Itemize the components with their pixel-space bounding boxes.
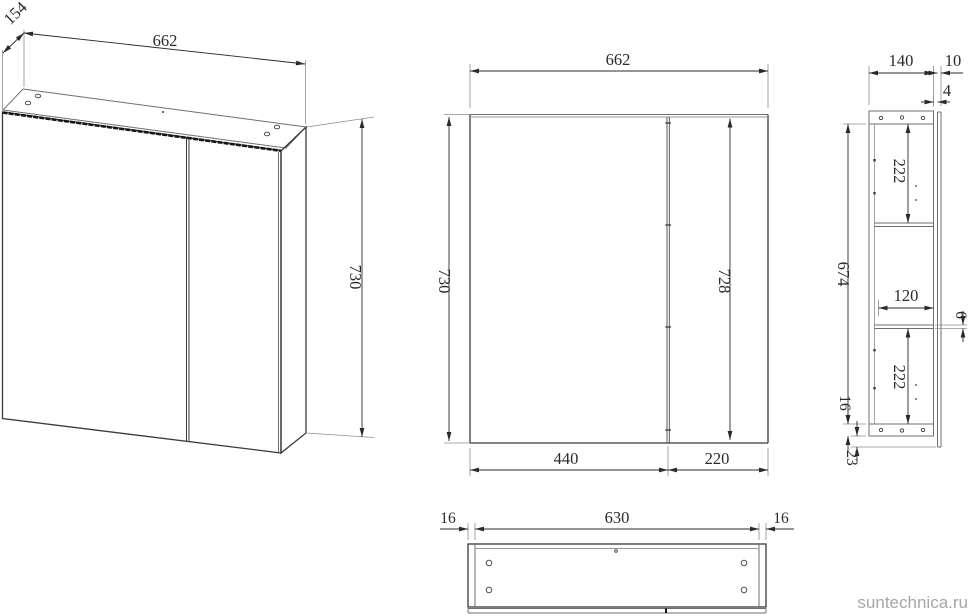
side-door bbox=[938, 112, 942, 447]
front-door-height-label: 728 bbox=[715, 269, 734, 294]
front-dim-door-height: 728 bbox=[715, 119, 734, 441]
watermark: suntechnica.ru bbox=[857, 593, 968, 612]
side-dim-shelf-depth: 120 bbox=[879, 286, 934, 316]
side-bottom-shelf-space-label: 222 bbox=[890, 365, 909, 390]
side-bottom-panel-label: 16 bbox=[836, 395, 853, 411]
iso-door-divider bbox=[187, 138, 190, 441]
side-dim-inner-height: 674 bbox=[834, 124, 866, 424]
bottom-door-strip bbox=[468, 609, 766, 614]
side-dim-shelf-thickness: 6 bbox=[935, 311, 969, 342]
front-right-door-label: 220 bbox=[705, 449, 730, 468]
iso-top-holes bbox=[25, 94, 279, 136]
bottom-carcass bbox=[468, 544, 766, 607]
bottom-right-wall-label: 16 bbox=[773, 510, 789, 527]
iso-width-label: 662 bbox=[153, 31, 178, 50]
front-width-label: 662 bbox=[606, 50, 631, 69]
side-dim-gap: 4 bbox=[921, 81, 951, 107]
bottom-left-wall-label: 16 bbox=[440, 510, 456, 527]
front-dim-height: 730 bbox=[435, 115, 470, 444]
side-dim-depth: 140 bbox=[869, 51, 934, 105]
side-gap-label: 4 bbox=[943, 81, 951, 100]
iso-front-face bbox=[3, 112, 282, 453]
iso-depth-label: 154 bbox=[0, 0, 31, 28]
technical-drawing-cabinet: 154 662 730 bbox=[0, 0, 970, 615]
iso-dim-depth: 154 bbox=[0, 0, 31, 110]
bottom-dims: 16 630 16 bbox=[440, 508, 794, 540]
front-dim-width: 662 bbox=[470, 50, 768, 108]
iso-view: 154 662 730 bbox=[0, 0, 374, 453]
side-shelf-thickness-label: 6 bbox=[952, 311, 969, 319]
side-shelves bbox=[875, 223, 934, 329]
front-left-door-label: 440 bbox=[554, 449, 579, 468]
front-height-label: 730 bbox=[435, 269, 454, 294]
side-door-thickness-label: 10 bbox=[945, 51, 962, 70]
bottom-view: 16 630 16 bbox=[440, 508, 794, 613]
side-view: 140 10 4 674 222 bbox=[834, 51, 969, 466]
side-depth-label: 140 bbox=[889, 51, 914, 70]
drawing-svg: 154 662 730 bbox=[0, 0, 970, 615]
side-top-shelf-space-label: 222 bbox=[890, 159, 909, 184]
bottom-inner-width-label: 630 bbox=[605, 508, 630, 527]
front-door-divider bbox=[665, 117, 671, 443]
front-dim-doors: 440 220 bbox=[470, 446, 768, 476]
side-dim-bottom-shelf-space: 222 bbox=[890, 329, 909, 425]
side-shelf-depth-label: 120 bbox=[894, 286, 919, 305]
iso-height-label: 730 bbox=[346, 265, 365, 290]
iso-dim-height: 730 bbox=[306, 117, 374, 438]
bottom-holes bbox=[486, 550, 747, 593]
front-view: 662 730 728 440 220 bbox=[435, 50, 768, 476]
side-dim-overhang: 23 bbox=[843, 421, 936, 466]
iso-dim-width: 662 bbox=[24, 31, 306, 124]
side-overhang-label: 23 bbox=[843, 450, 860, 466]
side-dim-top-shelf-space: 222 bbox=[890, 124, 909, 223]
side-inner-height-label: 674 bbox=[834, 262, 853, 287]
iso-side-face bbox=[281, 127, 306, 453]
